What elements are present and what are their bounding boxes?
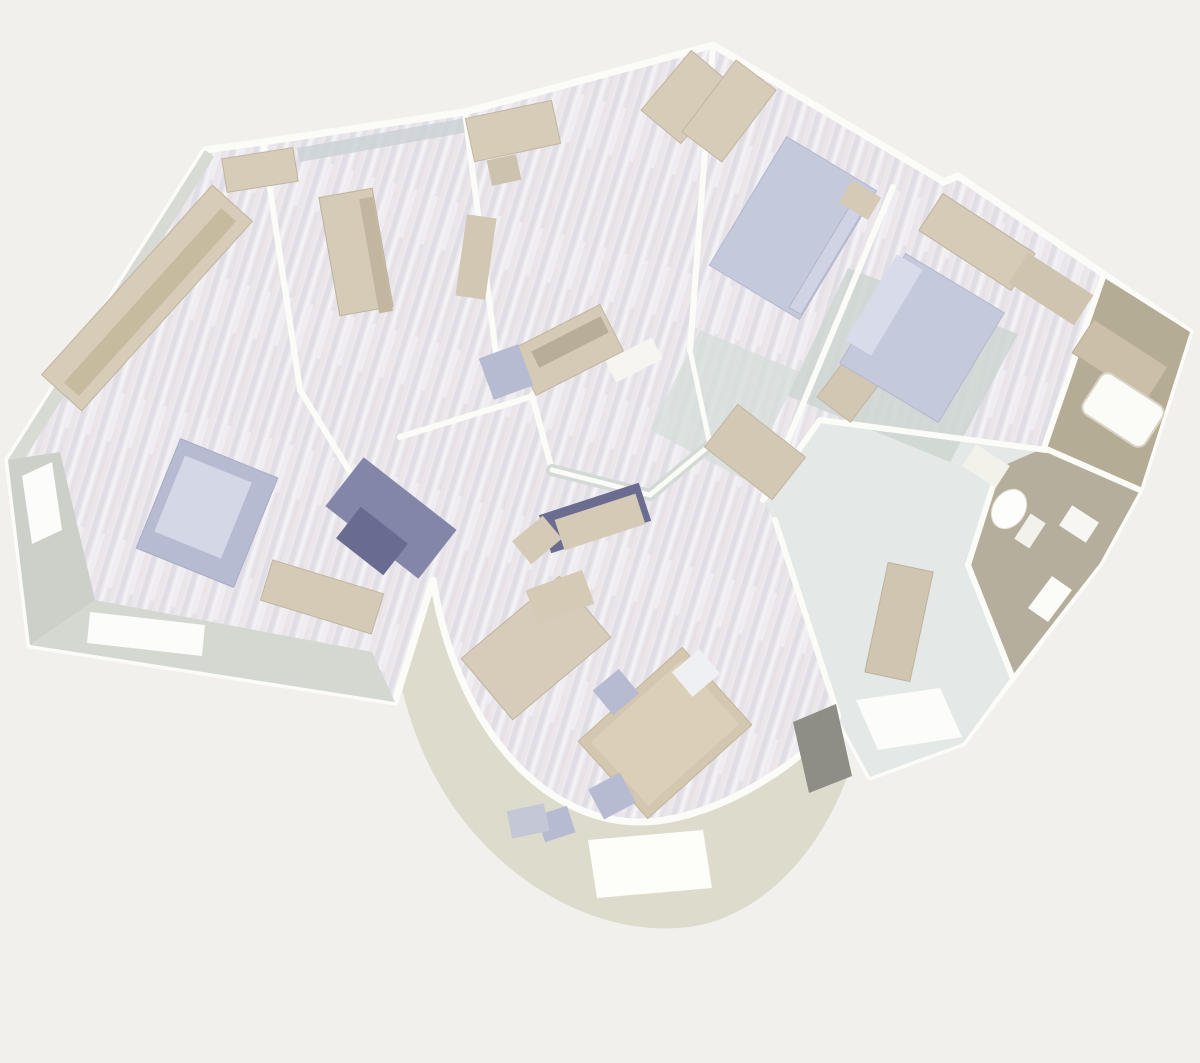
building-footprint-floor xyxy=(8,45,1190,822)
terrace-doormat xyxy=(588,830,712,898)
floorplan-svg xyxy=(0,0,1200,1063)
floorplan-stage xyxy=(0,0,1200,1063)
